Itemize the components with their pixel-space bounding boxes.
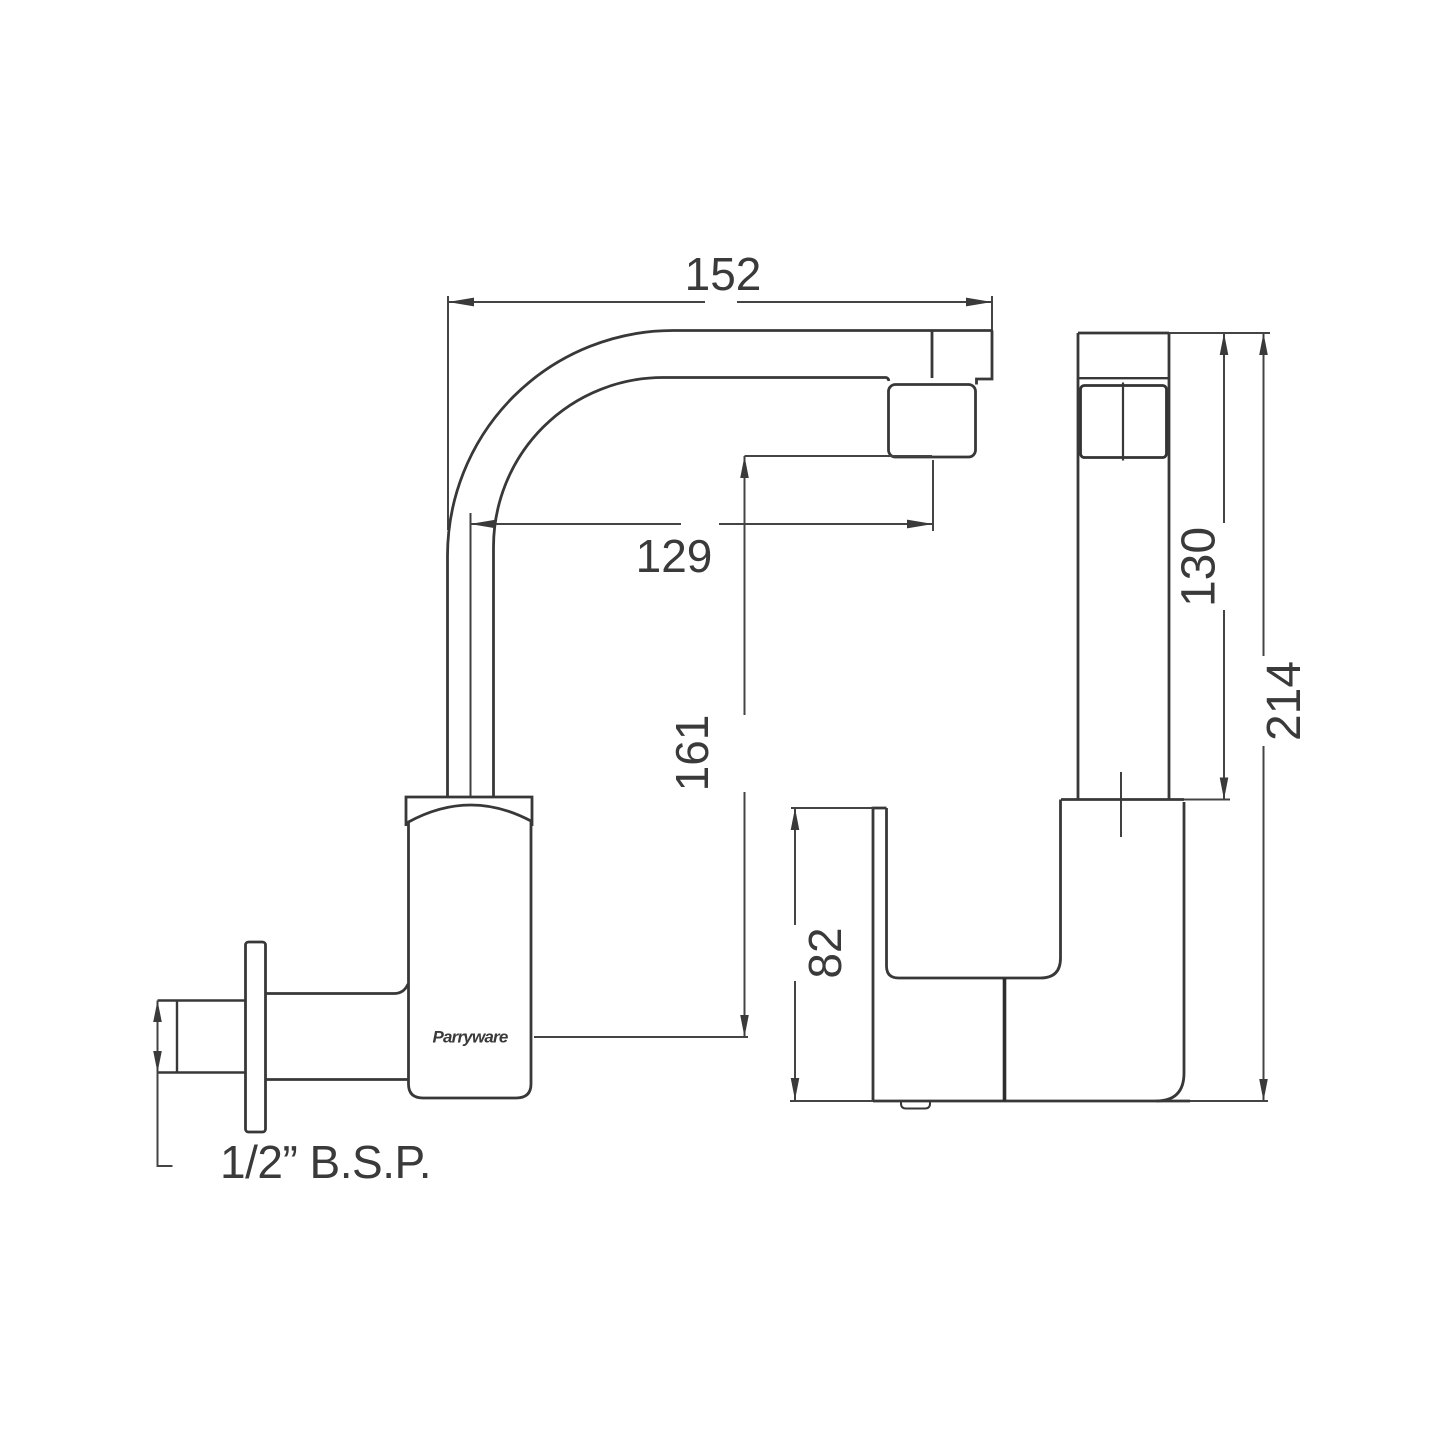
svg-text:152: 152 <box>685 248 762 300</box>
svg-text:130: 130 <box>1173 527 1226 607</box>
svg-text:Parryware: Parryware <box>432 1028 507 1047</box>
svg-text:161: 161 <box>666 715 718 792</box>
svg-text:82: 82 <box>799 927 851 978</box>
svg-text:214: 214 <box>1258 661 1311 741</box>
svg-text:129: 129 <box>636 530 713 582</box>
svg-text:1/2” B.S.P.: 1/2” B.S.P. <box>220 1136 431 1188</box>
